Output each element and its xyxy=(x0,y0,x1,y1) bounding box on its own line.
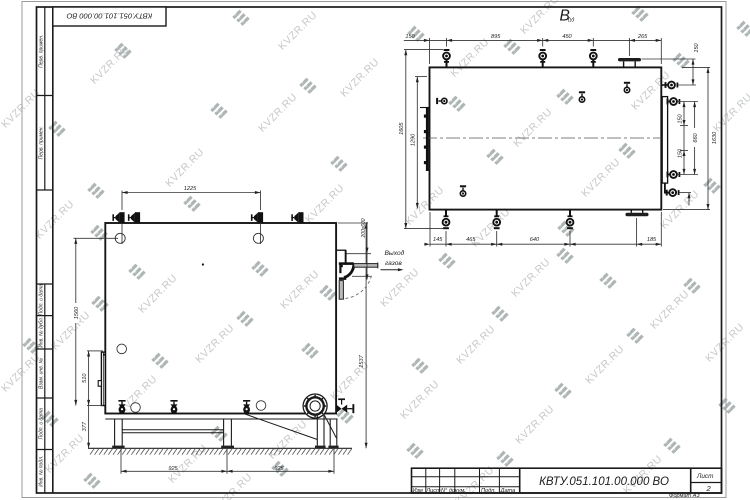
svg-text:640: 640 xyxy=(530,237,540,243)
svg-text:(у): (у) xyxy=(568,17,575,23)
svg-text:465: 465 xyxy=(466,237,476,243)
svg-text:145: 145 xyxy=(433,237,443,243)
svg-text:Подп.: Подп. xyxy=(481,488,496,494)
svg-text:450: 450 xyxy=(562,34,572,40)
svg-text:265: 265 xyxy=(637,34,648,40)
svg-text:Лист: Лист xyxy=(425,488,441,494)
svg-text:1560: 1560 xyxy=(74,306,80,319)
svg-text:Лист: Лист xyxy=(696,473,714,480)
svg-text:660: 660 xyxy=(693,132,699,142)
svg-text:150: 150 xyxy=(678,113,684,123)
svg-text:Перв. примен.: Перв. примен. xyxy=(39,35,45,68)
svg-text:150: 150 xyxy=(678,148,684,158)
svg-text:Формат А3: Формат А3 xyxy=(669,493,700,499)
svg-text:Подп. и дата: Подп. и дата xyxy=(39,408,45,440)
svg-text:1225: 1225 xyxy=(184,186,197,192)
svg-text:Подп. и дата: Подп. и дата xyxy=(39,284,45,316)
svg-text:Изм: Изм xyxy=(413,488,424,494)
svg-text:200х600: 200х600 xyxy=(361,218,367,238)
svg-text:895: 895 xyxy=(491,34,501,40)
svg-text:1605: 1605 xyxy=(399,122,405,135)
svg-text:150: 150 xyxy=(694,42,700,52)
svg-text:Дата: Дата xyxy=(500,488,516,494)
svg-text:150: 150 xyxy=(405,34,415,40)
svg-text:1290: 1290 xyxy=(411,133,417,146)
svg-text:Инв. № дубл.: Инв. № дубл. xyxy=(39,317,45,348)
svg-text:Перв. примен.: Перв. примен. xyxy=(39,126,45,159)
svg-text:510: 510 xyxy=(82,373,88,383)
svg-text:377: 377 xyxy=(82,421,88,431)
svg-text:N° докум.: N° докум. xyxy=(441,488,466,494)
svg-text:1537: 1537 xyxy=(359,354,365,367)
svg-text:КВТУ.051.101.00.000 ВО: КВТУ.051.101.00.000 ВО xyxy=(66,12,152,21)
svg-text:Инв. № подл.: Инв. № подл. xyxy=(39,456,45,487)
svg-text:925: 925 xyxy=(274,466,284,472)
svg-text:Выход: Выход xyxy=(385,249,405,257)
svg-text:КВТУ.051.101.00.000 ВО: КВТУ.051.101.00.000 ВО xyxy=(539,476,669,488)
svg-text:Взам. инв. №: Взам. инв. № xyxy=(39,357,45,389)
svg-text:1630: 1630 xyxy=(712,131,718,144)
svg-text:925: 925 xyxy=(168,466,178,472)
svg-text:2: 2 xyxy=(706,484,712,493)
svg-text:газов: газов xyxy=(385,260,402,267)
svg-text:185: 185 xyxy=(647,237,657,243)
